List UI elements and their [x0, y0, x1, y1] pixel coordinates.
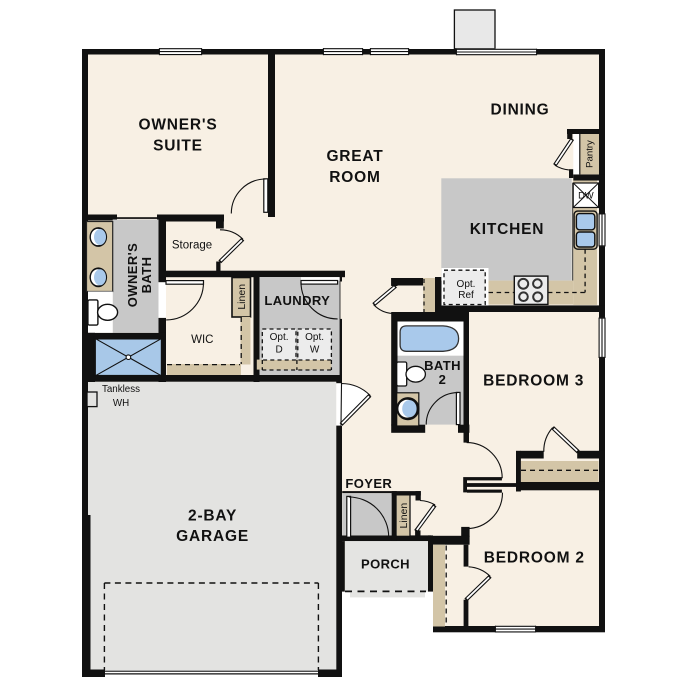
svg-text:OWNER'S: OWNER'S: [125, 243, 140, 307]
svg-text:Pantry: Pantry: [585, 140, 596, 168]
svg-text:Opt.: Opt.: [305, 332, 324, 343]
svg-text:WIC: WIC: [191, 334, 213, 346]
svg-text:2-BAY: 2-BAY: [188, 508, 237, 525]
svg-text:Opt.: Opt.: [270, 332, 289, 343]
svg-text:BEDROOM 2: BEDROOM 2: [484, 549, 585, 566]
svg-text:BATH: BATH: [139, 257, 154, 294]
svg-text:BEDROOM 3: BEDROOM 3: [483, 372, 584, 389]
svg-text:Storage: Storage: [172, 240, 212, 252]
svg-text:Ref: Ref: [458, 290, 474, 301]
svg-text:LAUNDRY: LAUNDRY: [264, 293, 330, 308]
svg-text:KITCHEN: KITCHEN: [470, 221, 545, 238]
svg-text:Tankless: Tankless: [102, 384, 140, 395]
svg-text:D: D: [275, 344, 282, 355]
svg-text:WH: WH: [113, 398, 129, 409]
svg-text:Linen: Linen: [398, 503, 410, 529]
svg-text:SUITE: SUITE: [153, 138, 203, 155]
svg-text:FOYER: FOYER: [345, 476, 392, 491]
svg-text:DINING: DINING: [490, 102, 549, 119]
svg-text:GREAT: GREAT: [326, 148, 383, 165]
svg-text:BATH: BATH: [424, 358, 461, 373]
svg-text:PORCH: PORCH: [361, 556, 410, 571]
svg-text:W: W: [310, 344, 320, 355]
svg-text:ROOM: ROOM: [329, 169, 380, 186]
svg-text:OWNER'S: OWNER'S: [138, 117, 217, 134]
svg-text:2: 2: [439, 372, 447, 387]
svg-text:Opt.: Opt.: [457, 279, 476, 290]
svg-text:Linen: Linen: [236, 284, 248, 310]
svg-text:DW: DW: [578, 191, 594, 201]
svg-text:GARAGE: GARAGE: [176, 528, 249, 545]
